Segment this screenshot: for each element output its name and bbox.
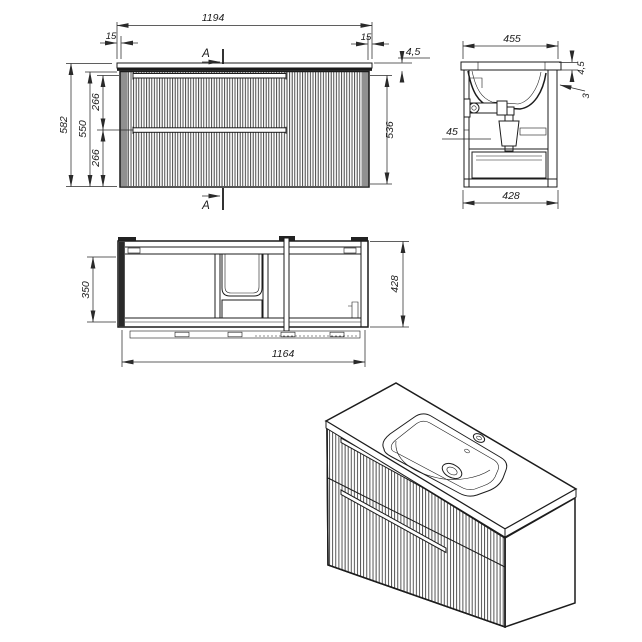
dim-inner-depth: 350: [80, 257, 116, 322]
svg-text:350: 350: [80, 281, 92, 299]
dim-overhang-right: 15: [351, 32, 389, 60]
svg-text:1194: 1194: [202, 12, 225, 24]
svg-text:4,5: 4,5: [576, 61, 587, 75]
plan-drawer-back: [222, 300, 262, 318]
front-left-band: [121, 72, 128, 186]
dim-body-height: 550: [77, 72, 117, 187]
svg-text:45: 45: [446, 126, 458, 138]
section-label-top: A: [201, 48, 210, 60]
dim-countertop-edge: 4,5: [559, 51, 587, 82]
plan-partition: [284, 238, 289, 331]
dim-countertop-width: 1194: [117, 12, 372, 59]
svg-text:3: 3: [581, 93, 592, 99]
side-countertop: [461, 62, 561, 70]
front-bottom-drawer-handle: [133, 128, 286, 133]
plan-divider-right: [263, 254, 268, 318]
plan-front-rail: [130, 331, 360, 338]
svg-text:428: 428: [389, 275, 401, 293]
front-view: A A 1194 15 15 4,5: [58, 12, 430, 212]
front-top-drawer-handle: [133, 74, 286, 79]
side-basin-inner: [472, 71, 541, 104]
svg-text:582: 582: [58, 116, 70, 134]
side-left-wall: [464, 70, 469, 187]
side-siphon-assembly: [464, 99, 546, 151]
side-bottom-panel: [464, 179, 557, 187]
drawing-canvas: A A 1194 15 15 4,5: [0, 0, 642, 642]
dim-lower-drawer: 266: [90, 130, 103, 187]
dim-rim-step: 3: [560, 85, 592, 99]
dim-overhang-left: 15: [100, 31, 138, 59]
svg-text:536: 536: [384, 121, 396, 139]
svg-text:1164: 1164: [272, 348, 295, 360]
dim-countertop-thickness: 4,5: [374, 46, 430, 82]
svg-text:266: 266: [90, 93, 102, 112]
dim-cabinet-depth-side: 428: [463, 190, 558, 209]
svg-text:428: 428: [502, 190, 520, 202]
plan-section-view: 350 428 1164: [80, 236, 409, 367]
front-countertop: [117, 63, 372, 68]
svg-text:266: 266: [90, 149, 102, 168]
svg-text:15: 15: [106, 31, 117, 42]
plan-divider-left: [215, 254, 220, 318]
dim-cabinet-depth-plan: 428: [370, 242, 409, 328]
dim-countertop-depth: 455: [463, 33, 558, 59]
plan-left-wall: [119, 242, 125, 326]
svg-text:15: 15: [361, 32, 372, 43]
section-label-bottom: A: [201, 200, 210, 212]
side-section-view: 455 428 4,5 3 45: [442, 33, 592, 209]
svg-text:4,5: 4,5: [406, 46, 421, 58]
front-right-band: [362, 72, 370, 186]
svg-text:550: 550: [77, 120, 89, 138]
iso-view: [326, 383, 576, 635]
dim-front-panel-height: 536: [370, 76, 396, 185]
svg-text:455: 455: [503, 33, 521, 45]
technical-drawing-sheet: A A 1194 15 15 4,5: [0, 0, 642, 642]
